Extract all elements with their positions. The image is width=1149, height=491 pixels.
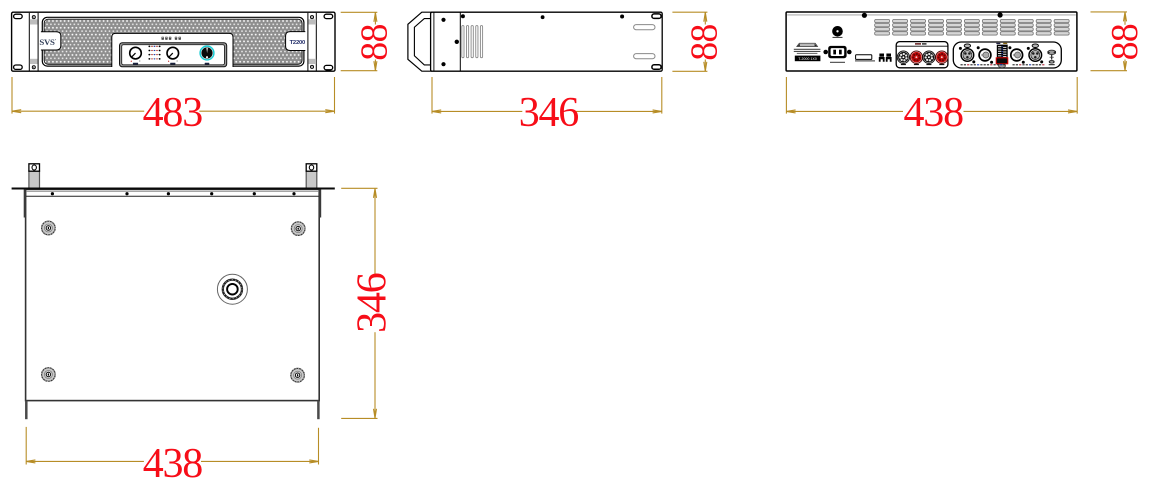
svg-text:88: 88 (684, 24, 726, 60)
svg-text:T-2000 1X0: T-2000 1X0 (798, 57, 817, 61)
svg-text:438: 438 (143, 441, 203, 487)
svg-text:346: 346 (519, 90, 579, 136)
svg-text:438: 438 (903, 90, 963, 136)
svg-text:483: 483 (143, 90, 203, 136)
svg-text:SVS': SVS' (39, 37, 56, 47)
svg-text:346: 346 (350, 273, 396, 333)
svg-text:88: 88 (353, 24, 395, 60)
svg-text:88: 88 (1104, 24, 1146, 60)
svg-text:T2200: T2200 (290, 40, 305, 46)
